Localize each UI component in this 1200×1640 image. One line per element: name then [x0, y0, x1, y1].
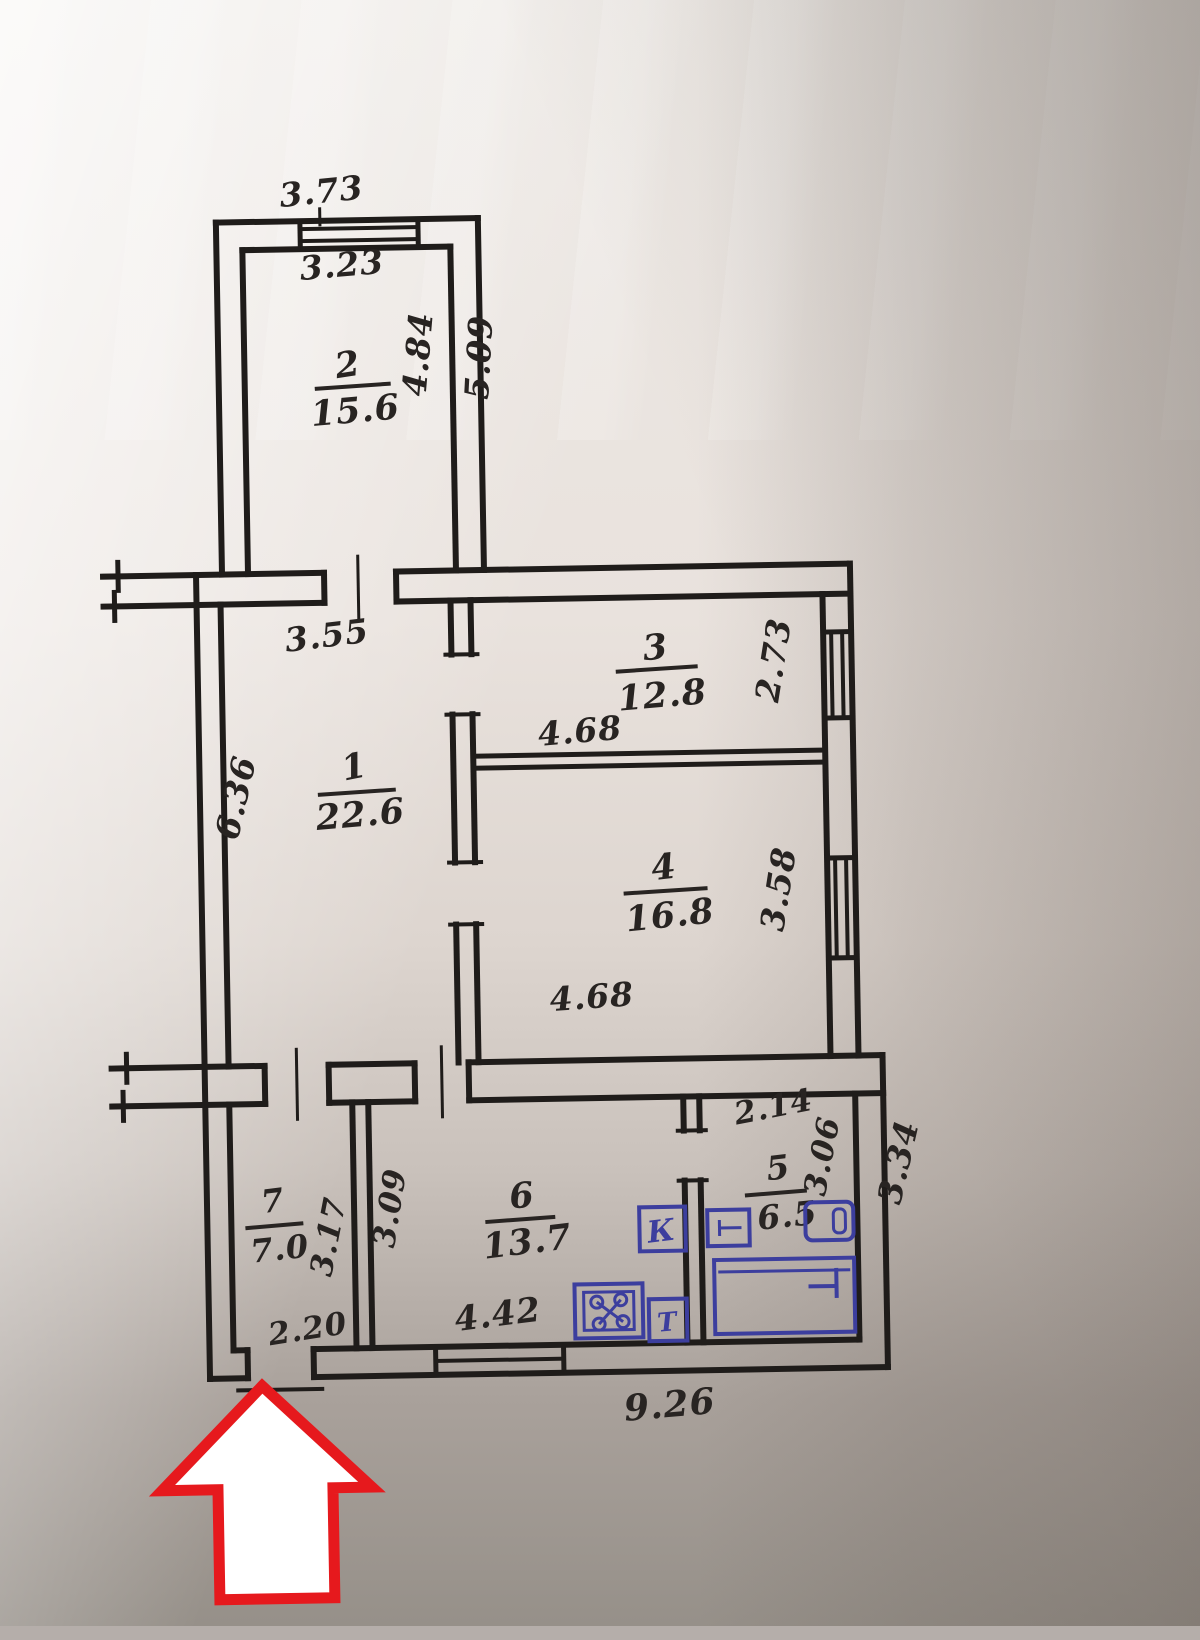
sink-symbol [707, 1209, 750, 1246]
left-outer-wall [196, 575, 234, 1379]
boiler-symbol: К [639, 1207, 686, 1252]
svg-text:6.5: 6.5 [755, 1193, 819, 1238]
svg-text:5: 5 [764, 1147, 793, 1189]
dim-bottom-block-height: 3.34 [870, 1117, 927, 1208]
dim-room2-height: 4.84 [395, 310, 441, 397]
dim-room7-height-right: 3.09 [366, 1166, 414, 1250]
dim-room2-width: 3.23 [298, 242, 385, 288]
svg-text:7: 7 [259, 1181, 287, 1222]
svg-text:16.8: 16.8 [623, 890, 716, 940]
dim-bottom-total-width: 9.26 [622, 1380, 717, 1430]
dim-room2-height-outer: 5.09 [457, 314, 500, 400]
stove-symbol [574, 1283, 643, 1338]
room6-label: 6 13.7 [480, 1174, 575, 1268]
bathtub-symbol [714, 1258, 855, 1334]
room3-label: 3 12.8 [615, 625, 709, 720]
dim-room3-height: 2.73 [747, 615, 799, 705]
dim-room3-width: 4.68 [536, 708, 623, 754]
svg-text:22.6: 22.6 [313, 790, 406, 839]
svg-text:13.7: 13.7 [481, 1216, 575, 1268]
right-outer-wall-lower [854, 1055, 887, 1367]
room1-rooms34-wall [444, 600, 484, 1062]
dim-room6-width: 4.42 [452, 1290, 543, 1340]
svg-text:15.6: 15.6 [309, 386, 401, 435]
room-labels: 2 15.6 3 12.8 1 22.6 4 16.8 7 7.0 6 13.7 [230, 335, 820, 1272]
dim-room7-height-left: 3.17 [304, 1194, 355, 1279]
room7-label: 7 7.0 [245, 1180, 311, 1271]
svg-text:3: 3 [641, 626, 671, 669]
dim-top-window-width: 3.73 [277, 168, 365, 216]
water-heater-symbol: Т [649, 1299, 688, 1342]
svg-text:4: 4 [649, 846, 679, 890]
floor-plan-photo: 2 15.6 3 12.8 1 22.6 4 16.8 7 7.0 6 13.7 [0, 0, 1200, 1636]
room4-label: 4 16.8 [623, 845, 717, 941]
floor-plan: 2 15.6 3 12.8 1 22.6 4 16.8 7 7.0 6 13.7 [0, 0, 1200, 1636]
right-outer-wall-upper [822, 564, 859, 1056]
svg-text:7.0: 7.0 [249, 1227, 311, 1271]
room2-label: 2 15.6 [308, 342, 401, 435]
entrance-arrow [160, 1384, 374, 1601]
svg-text:1: 1 [338, 744, 371, 789]
room3-window [823, 632, 852, 718]
room2-top-window [300, 207, 419, 249]
rooms65-partition [677, 1096, 709, 1342]
main-upper-wall [103, 548, 847, 623]
dim-room4-height: 3.58 [752, 844, 804, 933]
svg-text:6: 6 [507, 1174, 537, 1217]
rooms34-partition [473, 750, 825, 768]
svg-text:12.8: 12.8 [616, 671, 708, 720]
svg-text:К: К [644, 1212, 677, 1250]
dim-room5-top-width: 2.14 [730, 1082, 816, 1133]
dim-room1-top-width: 3.55 [283, 611, 371, 660]
svg-text:Т: Т [656, 1307, 680, 1339]
dim-room4-width: 4.68 [548, 974, 635, 1019]
room1-label: 1 22.6 [312, 744, 407, 839]
dim-room5-height: 3.06 [797, 1114, 848, 1199]
dim-room1-height: 6.36 [207, 752, 264, 843]
svg-text:2: 2 [331, 343, 363, 388]
